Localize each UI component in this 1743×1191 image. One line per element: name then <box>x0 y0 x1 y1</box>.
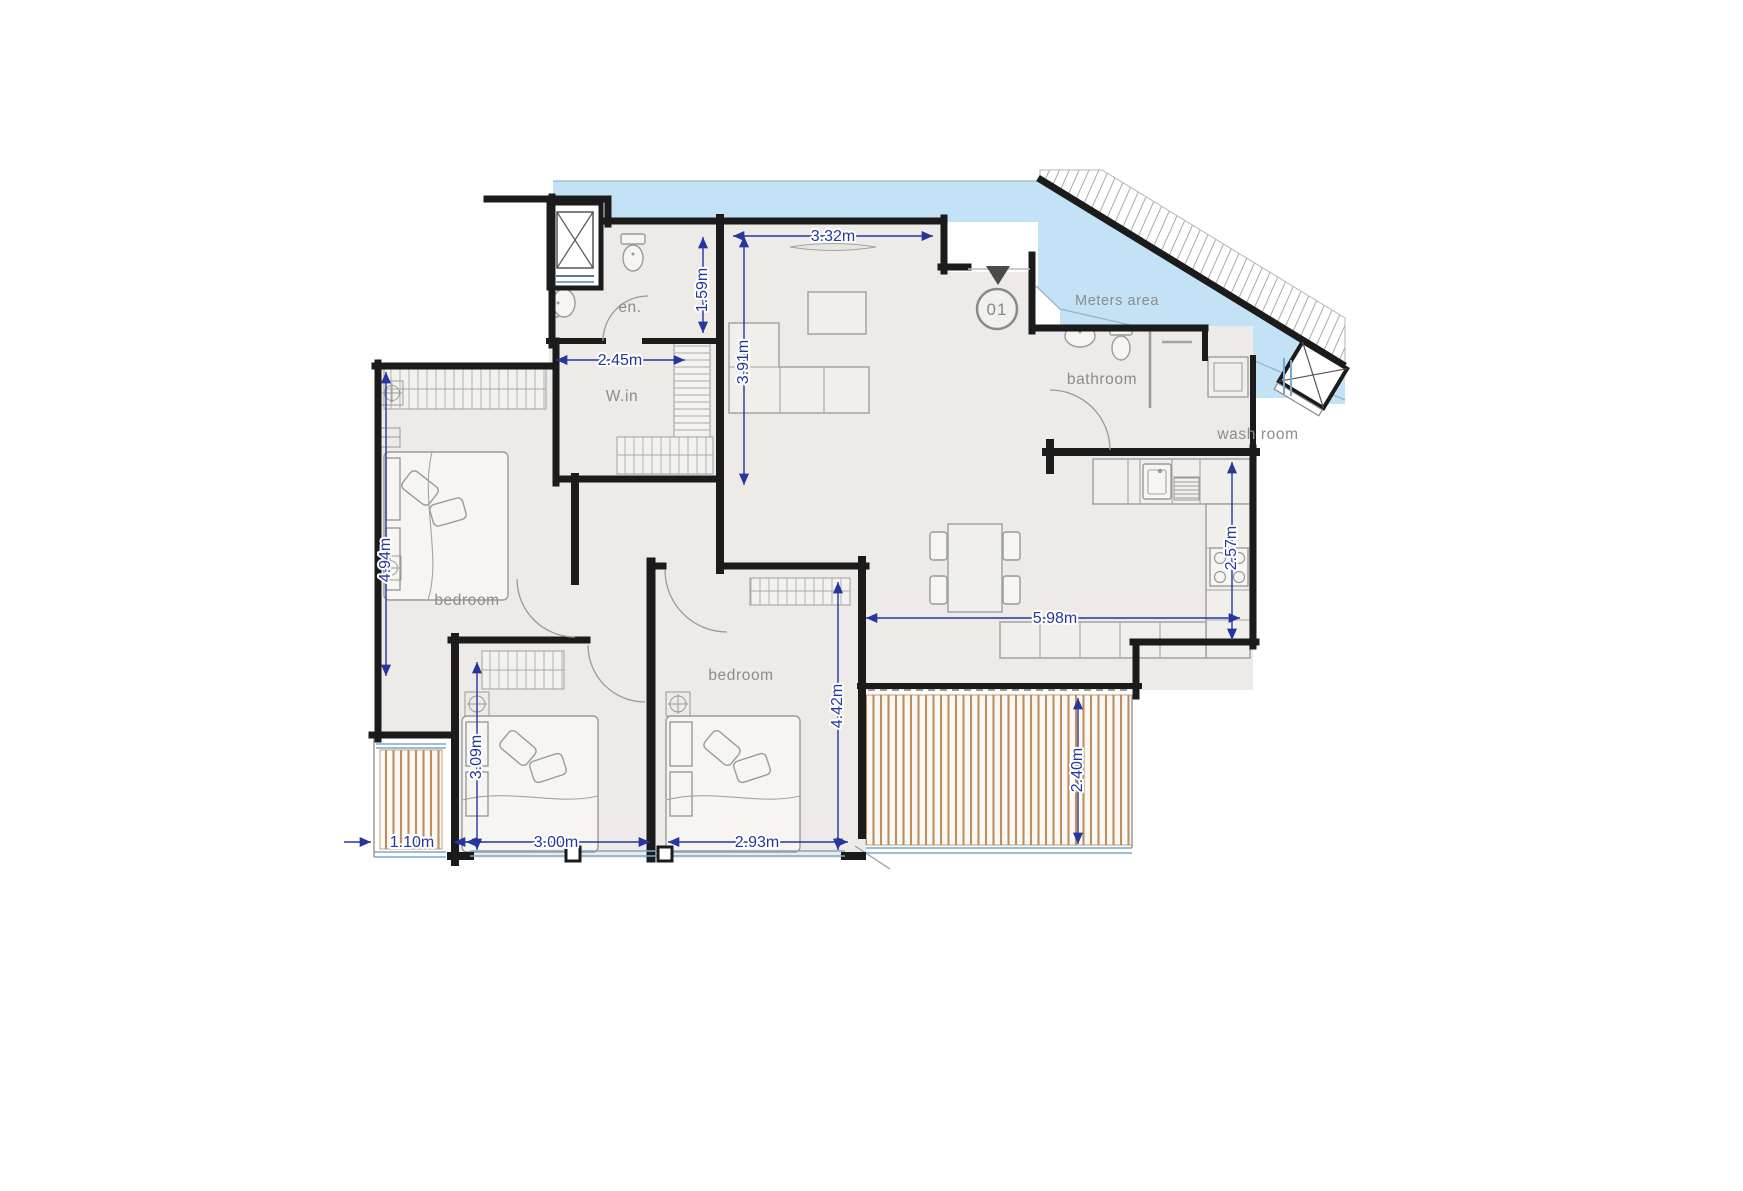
label-walk-in: W.in <box>606 388 639 405</box>
svg-text:4.94m: 4.94m <box>377 538 394 582</box>
svg-text:2.40m: 2.40m <box>1069 748 1086 792</box>
svg-text:2.57m: 2.57m <box>1223 526 1240 570</box>
svg-text:3.00m: 3.00m <box>534 834 578 851</box>
closet-bedroom3 <box>750 578 850 605</box>
label-ensuite: en. <box>618 299 641 316</box>
elevator-shaft-left <box>549 203 601 288</box>
label-bedroom-left: bedroom <box>434 592 499 609</box>
svg-text:4.42m: 4.42m <box>829 684 846 728</box>
floor-plan-drawing: 01 en. W.in bedroom bedroom bathroom was… <box>0 0 1743 1191</box>
dining-table <box>948 524 1002 612</box>
washing-machine <box>1208 357 1248 397</box>
svg-text:3.32m: 3.32m <box>811 228 855 245</box>
bed-bedroom1 <box>384 452 508 600</box>
ensuite-toilet <box>621 234 645 271</box>
balcony-large <box>855 690 1132 869</box>
dining-chair <box>930 576 947 604</box>
svg-text:3.91m: 3.91m <box>735 340 752 384</box>
floor-plan-canvas: 01 en. W.in bedroom bedroom bathroom was… <box>0 0 1743 1191</box>
svg-text:2.45m: 2.45m <box>598 352 642 369</box>
bed-bedroom3 <box>666 716 800 852</box>
walkin-shelf-bottom <box>617 437 713 474</box>
label-bathroom: bathroom <box>1067 371 1137 388</box>
dining-chair <box>930 532 947 560</box>
label-meters-area: Meters area <box>1075 293 1159 309</box>
dining-chair <box>1003 576 1020 604</box>
svg-text:1.59m: 1.59m <box>694 268 711 312</box>
svg-text:5.98m: 5.98m <box>1033 610 1077 627</box>
svg-text:1.10m: 1.10m <box>390 834 434 851</box>
svg-text:3.09m: 3.09m <box>468 735 485 779</box>
svg-text:2.93m: 2.93m <box>735 834 779 851</box>
kitchen-vent <box>1174 477 1199 500</box>
deck-large <box>866 695 1132 845</box>
coffee-table <box>808 292 866 334</box>
dining-chair <box>1003 532 1020 560</box>
walkin-shelf-side <box>674 343 710 437</box>
unit-number: 01 <box>987 300 1008 319</box>
label-bedroom-right: bedroom <box>708 667 773 684</box>
label-wash-room: wash room <box>1216 426 1298 443</box>
